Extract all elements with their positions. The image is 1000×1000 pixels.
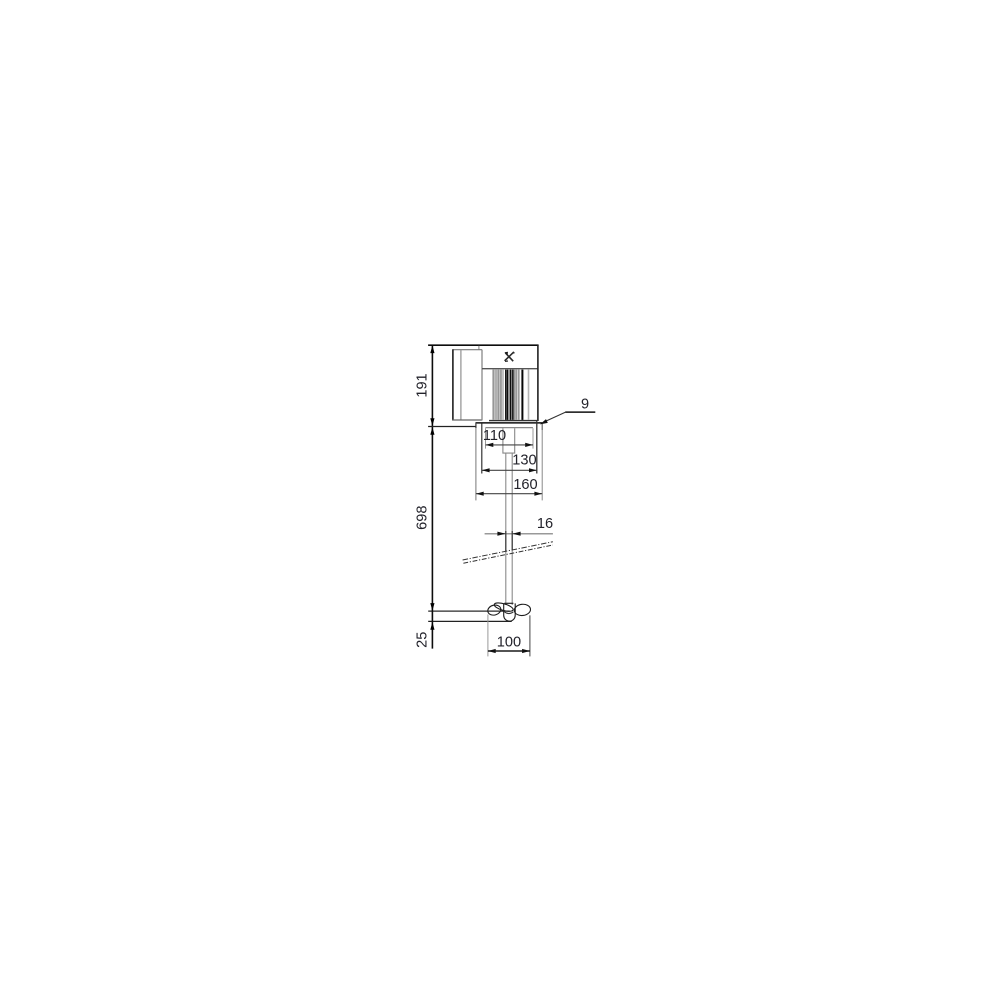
svg-text:100: 100 [497, 635, 521, 651]
svg-text:130: 130 [512, 452, 536, 468]
svg-text:191: 191 [415, 373, 431, 397]
svg-text:698: 698 [414, 506, 430, 530]
svg-text:25: 25 [415, 632, 431, 648]
svg-text:16: 16 [537, 516, 553, 532]
svg-text:160: 160 [513, 477, 537, 493]
svg-text:110: 110 [483, 428, 506, 444]
svg-text:9: 9 [581, 396, 589, 412]
